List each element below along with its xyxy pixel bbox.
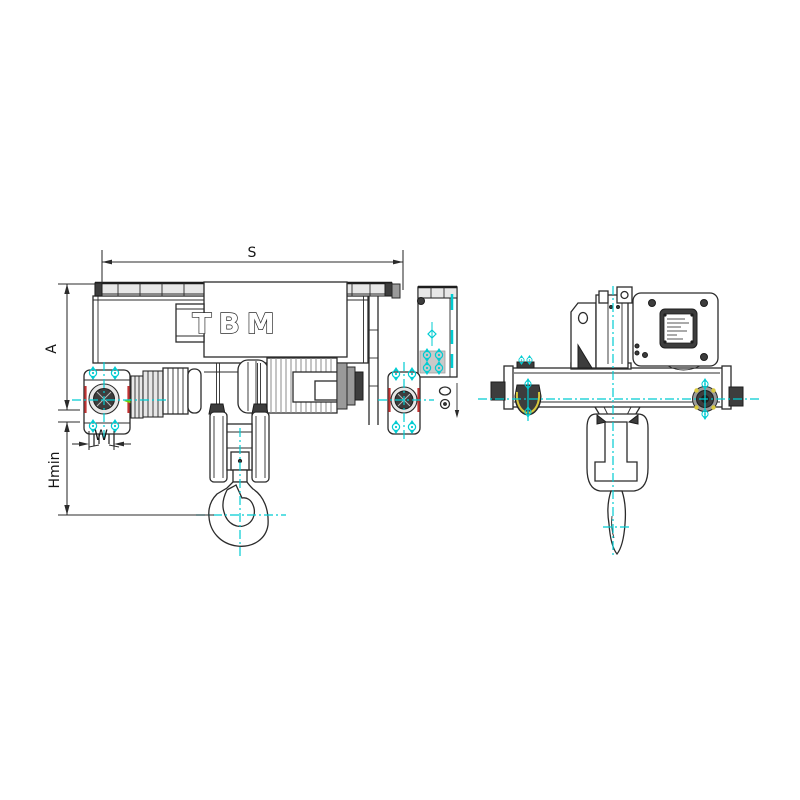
- side-panel: [418, 287, 458, 377]
- technical-drawing: TBM: [0, 0, 800, 800]
- dim-height-label: A: [44, 344, 60, 354]
- end-view: [478, 286, 762, 558]
- dim-headroom-label: Hmin: [47, 452, 63, 489]
- suspension-bracket: [571, 287, 632, 369]
- dim-span-label: S: [248, 245, 257, 261]
- dimension-hmin: Hmin: [47, 422, 214, 515]
- rope-guide-strip: [369, 296, 378, 425]
- brand-label: TBM: [192, 307, 281, 340]
- side-view: TBM: [44, 245, 459, 557]
- hook-assembly-end: [587, 407, 648, 554]
- motor-end-face: [633, 293, 718, 370]
- hoist-motor: [204, 358, 363, 413]
- dim-wheel-gap-label: W: [94, 428, 108, 444]
- nameplate: [660, 309, 697, 348]
- hoist-drawing-svg: TBM: [0, 0, 800, 800]
- travel-motor: [131, 368, 201, 418]
